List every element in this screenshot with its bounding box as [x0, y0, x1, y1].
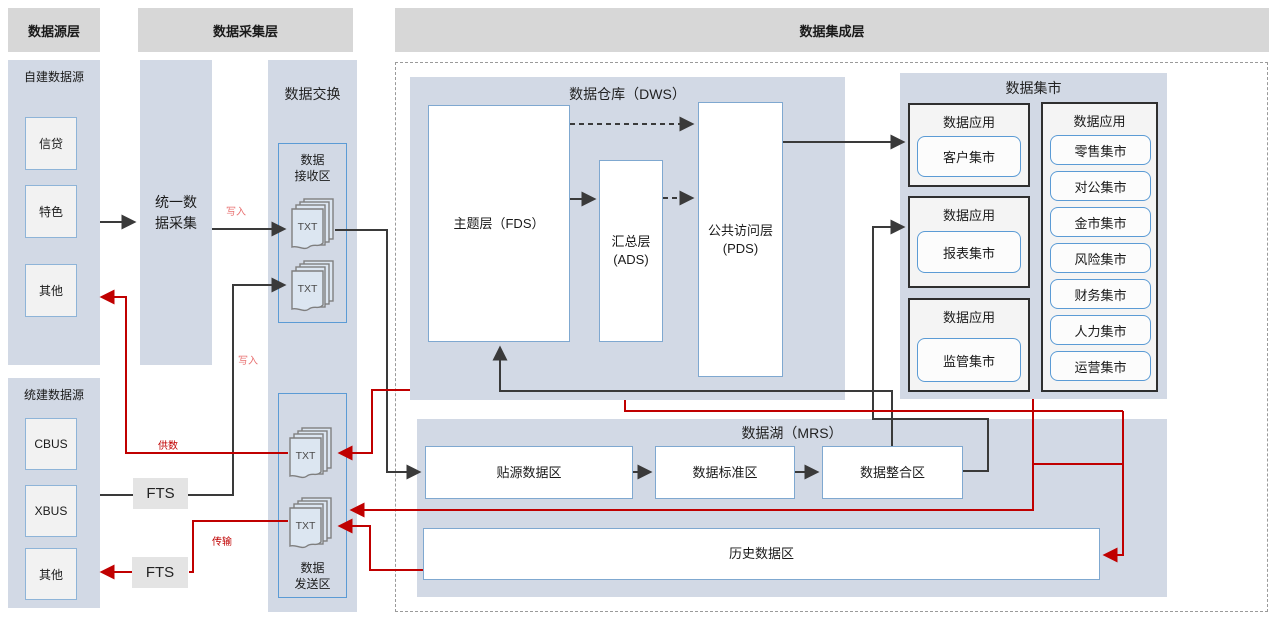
source-box-xbus: XBUS: [25, 485, 77, 537]
mrs-panel: 数据湖（MRS） 贴源数据区 数据标准区 数据整合区 历史数据区: [417, 419, 1167, 597]
dws-panel: 数据仓库（DWS） 主题层（FDS） 汇总层 (ADS) 公共访问层 (PDS): [410, 77, 845, 400]
txt-file-stack-receive-1: TXT: [290, 198, 336, 252]
pds-box: 公共访问层 (PDS): [698, 102, 783, 377]
mart-corporate: 对公集市: [1050, 171, 1151, 201]
txt-label: TXT: [298, 283, 318, 295]
app-group-title: 数据应用: [910, 300, 1028, 326]
zone-history: 历史数据区: [423, 528, 1100, 580]
unified-collection-column: 统一数 据采集: [140, 60, 212, 365]
mart-risk: 风险集市: [1050, 243, 1151, 273]
receive-zone-label: 数据 接收区: [279, 144, 346, 184]
header-integration-layer: 数据集成层: [395, 8, 1269, 52]
unified-built-sources-panel: 统建数据源 CBUS XBUS 其他: [8, 378, 100, 608]
fds-box: 主题层（FDS）: [428, 105, 570, 342]
txt-label: TXT: [296, 520, 316, 532]
app-group-title: 数据应用: [1043, 104, 1156, 130]
txt-file-stack-send-2: TXT: [288, 497, 334, 551]
unified-built-sources-title: 统建数据源: [8, 378, 100, 403]
dws-title: 数据仓库（DWS）: [410, 77, 845, 104]
txt-file-stack-send-1: TXT: [288, 427, 334, 481]
mart-report: 报表集市: [917, 231, 1021, 273]
source-box-credit: 信贷: [25, 117, 77, 170]
source-box-other-bottom: 其他: [25, 548, 77, 600]
txt-file-stack-receive-2: TXT: [290, 260, 336, 314]
edge-label-transfer: 传输: [212, 533, 232, 548]
mart-customer: 客户集市: [917, 136, 1021, 177]
txt-label: TXT: [296, 450, 316, 462]
send-zone-label: 数据 发送区: [279, 552, 346, 592]
txt-label: TXT: [298, 221, 318, 233]
mart-retail: 零售集市: [1050, 135, 1151, 165]
app-group-customer: 数据应用 客户集市: [908, 103, 1030, 187]
app-group-report: 数据应用 报表集市: [908, 196, 1030, 288]
zone-standard: 数据标准区: [655, 446, 795, 499]
fts-box-bottom: FTS: [132, 557, 188, 588]
fts-box-top: FTS: [133, 478, 188, 509]
source-box-special: 特色: [25, 185, 77, 238]
zone-integration: 数据整合区: [822, 446, 963, 499]
app-group-regulatory: 数据应用 监管集市: [908, 298, 1030, 392]
mart-financial-market: 金市集市: [1050, 207, 1151, 237]
edge-label-write-bottom: 写入: [238, 352, 258, 367]
marts-panel: 数据集市 数据应用 客户集市 数据应用 报表集市 数据应用 监管集市 数据应用 …: [900, 73, 1167, 399]
ads-box: 汇总层 (ADS): [599, 160, 663, 342]
self-built-sources-title: 自建数据源: [8, 60, 100, 85]
mart-finance: 财务集市: [1050, 279, 1151, 309]
edge-label-write-top: 写入: [226, 203, 246, 218]
data-exchange-column: 数据交换 数据 接收区 TXT TXT: [268, 60, 357, 612]
header-source-layer: 数据源层: [8, 8, 100, 52]
self-built-sources-panel: 自建数据源 信贷 特色 其他: [8, 60, 100, 365]
mart-hr: 人力集市: [1050, 315, 1151, 345]
app-group-title: 数据应用: [910, 198, 1028, 224]
header-collection-layer: 数据采集层: [138, 8, 353, 52]
mart-operations: 运营集市: [1050, 351, 1151, 381]
source-box-cbus: CBUS: [25, 418, 77, 470]
architecture-diagram: 数据源层 数据采集层 数据集成层 自建数据源 信贷 特色 其他 统建数据源 CB…: [0, 0, 1280, 627]
source-box-other-top: 其他: [25, 264, 77, 317]
edge-label-supply: 供数: [158, 437, 178, 452]
app-group-right: 数据应用 零售集市 对公集市 金市集市 风险集市 财务集市 人力集市 运营集市: [1041, 102, 1158, 392]
zone-source-replica: 贴源数据区: [425, 446, 633, 499]
mrs-title: 数据湖（MRS）: [417, 419, 1167, 443]
mart-regulatory: 监管集市: [917, 338, 1021, 382]
receive-zone-box: 数据 接收区 TXT TXT: [278, 143, 347, 323]
data-exchange-title: 数据交换: [268, 60, 357, 104]
send-zone-box: TXT TXT 数据 发送区: [278, 393, 347, 598]
marts-title: 数据集市: [900, 73, 1167, 98]
app-group-title: 数据应用: [910, 105, 1028, 131]
